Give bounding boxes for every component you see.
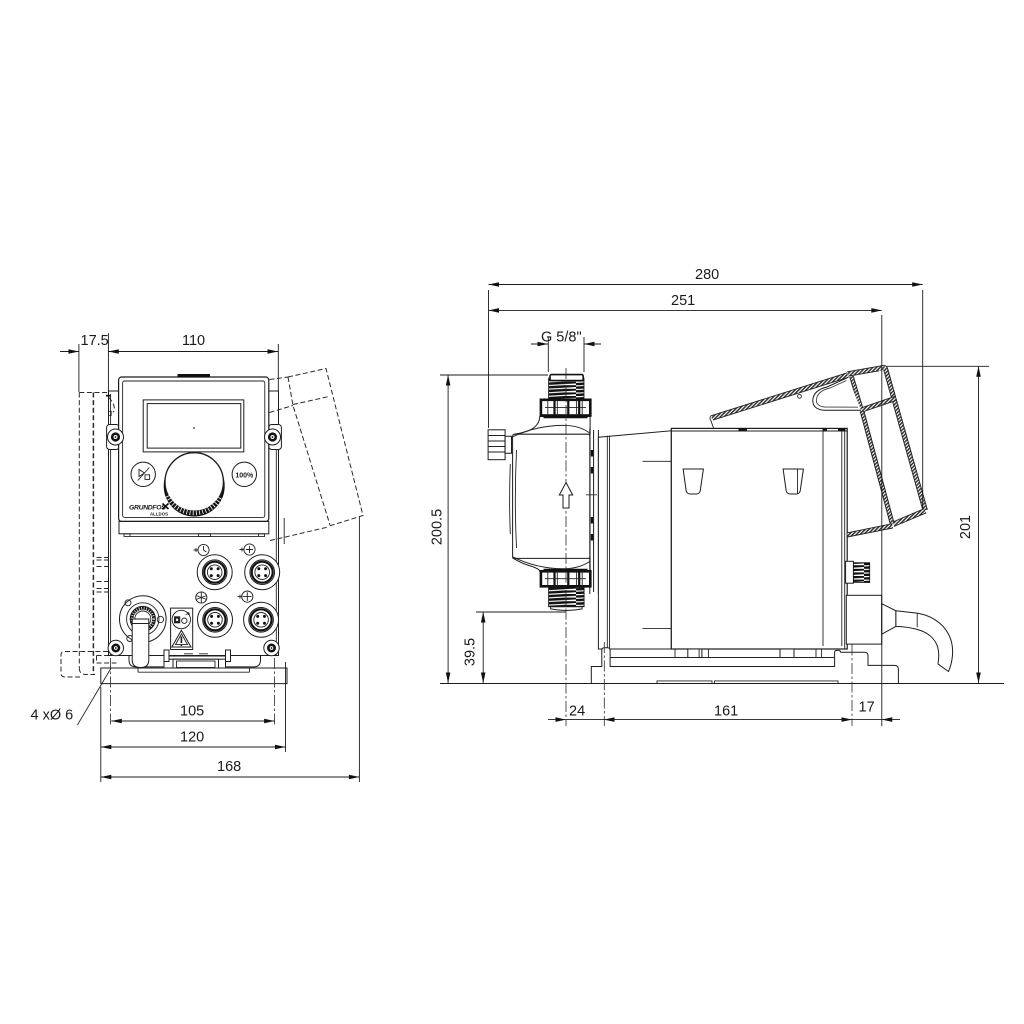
- svg-text:ALLDOS: ALLDOS: [150, 512, 168, 517]
- svg-text:110: 110: [182, 333, 205, 349]
- svg-text:24: 24: [569, 704, 585, 720]
- svg-text:280: 280: [695, 267, 719, 283]
- svg-text:105: 105: [180, 704, 204, 720]
- svg-text:17.5: 17.5: [81, 333, 109, 349]
- svg-text:G 5/8": G 5/8": [541, 330, 582, 346]
- svg-text:GRUNDFOS: GRUNDFOS: [129, 505, 166, 512]
- svg-text:200.5: 200.5: [430, 509, 446, 545]
- svg-text:100%: 100%: [235, 472, 254, 479]
- svg-text:39.5: 39.5: [463, 638, 479, 666]
- svg-text:201: 201: [958, 515, 974, 539]
- svg-text:17: 17: [859, 700, 875, 716]
- svg-text:168: 168: [217, 759, 241, 775]
- svg-text:4 xØ 6: 4 xØ 6: [31, 708, 74, 724]
- svg-text:161: 161: [714, 704, 738, 720]
- svg-text:120: 120: [180, 730, 204, 746]
- svg-text:251: 251: [671, 293, 695, 309]
